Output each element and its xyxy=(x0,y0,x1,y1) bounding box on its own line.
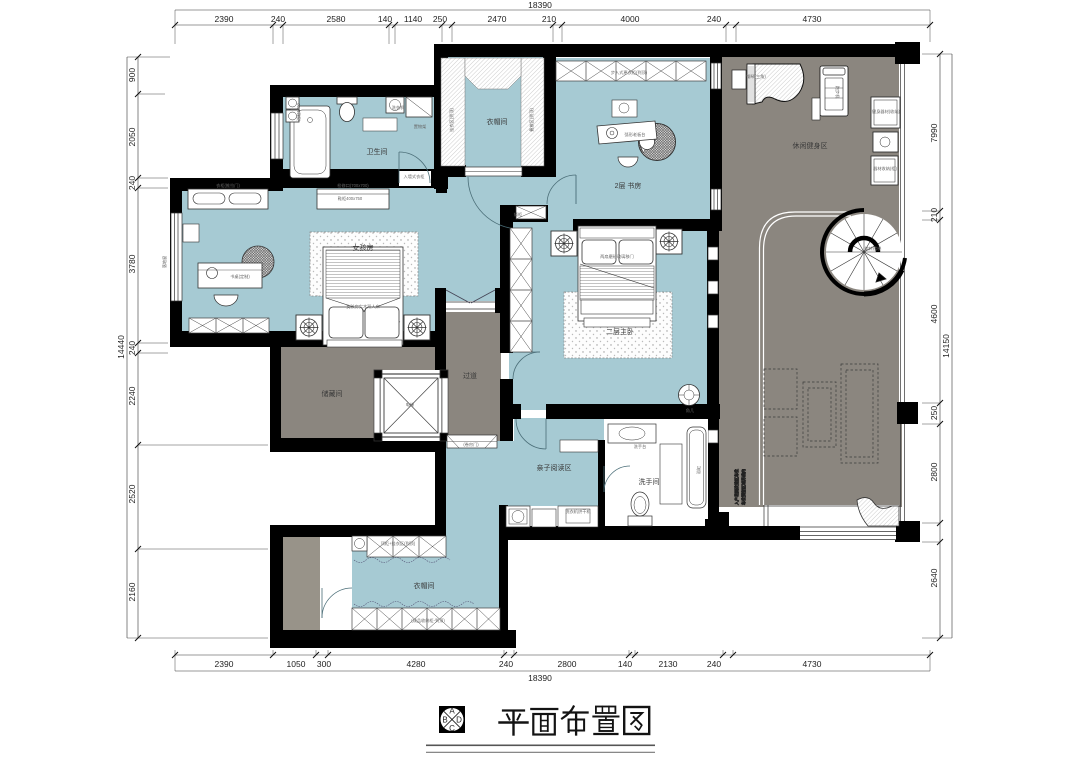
svg-text:2390: 2390 xyxy=(215,659,234,669)
svg-text:2层 书房: 2层 书房 xyxy=(615,181,642,190)
svg-text:电梯: 电梯 xyxy=(406,401,414,408)
svg-text:A: A xyxy=(449,707,455,716)
svg-text:鞋柜400x750: 鞋柜400x750 xyxy=(338,195,363,202)
svg-text:210: 210 xyxy=(542,14,556,24)
svg-text:叠放区(到顶): 叠放区(到顶) xyxy=(528,108,535,132)
svg-text:储藏间: 储藏间 xyxy=(322,389,343,398)
svg-text:2800: 2800 xyxy=(929,462,939,481)
svg-text:18390: 18390 xyxy=(528,673,552,683)
svg-text:240: 240 xyxy=(271,14,285,24)
svg-text:亲子阅读区: 亲子阅读区 xyxy=(537,463,572,472)
svg-text:2470: 2470 xyxy=(488,14,507,24)
svg-text:4600: 4600 xyxy=(929,304,939,323)
svg-text:(成品收纳柜-到顶): (成品收纳柜-到顶) xyxy=(411,617,445,624)
svg-text:(卷帘门): (卷帘门) xyxy=(463,441,479,448)
svg-text:1050: 1050 xyxy=(287,659,306,669)
svg-text:两扇磨砂玻璃移门: 两扇磨砂玻璃移门 xyxy=(600,253,634,260)
svg-text:1140: 1140 xyxy=(404,14,423,24)
svg-text:4280: 4280 xyxy=(407,659,426,669)
svg-text:洗手间: 洗手间 xyxy=(639,477,660,486)
svg-text:7990: 7990 xyxy=(929,123,939,142)
svg-text:入墙式衣柜: 入墙式衣柜 xyxy=(404,173,425,180)
svg-text:2240: 2240 xyxy=(127,386,137,405)
svg-text:300: 300 xyxy=(317,659,331,669)
svg-text:健身器材(收纳): 健身器材(收纳) xyxy=(872,108,901,115)
svg-text:浴缸1700: 浴缸1700 xyxy=(295,102,302,120)
svg-text:D: D xyxy=(456,716,462,725)
svg-text:跑步机: 跑步机 xyxy=(834,86,841,99)
svg-text:顶柜+挂衣区(到顶): 顶柜+挂衣区(到顶) xyxy=(381,540,416,547)
svg-text:步入式更衣柜(到顶): 步入式更衣柜(到顶) xyxy=(611,69,648,76)
svg-text:250: 250 xyxy=(929,406,939,420)
svg-text:角几: 角几 xyxy=(686,407,695,414)
svg-text:4730: 4730 xyxy=(803,14,822,24)
svg-text:18390: 18390 xyxy=(528,0,552,10)
svg-text:衣柜(推拉门): 衣柜(推拉门) xyxy=(216,182,240,189)
svg-text:检修口(700x700): 检修口(700x700) xyxy=(337,182,369,189)
svg-text:2520: 2520 xyxy=(127,484,137,503)
svg-text:衣帽间: 衣帽间 xyxy=(414,581,435,590)
svg-text:250: 250 xyxy=(433,14,447,24)
svg-text:二层主卧: 二层主卧 xyxy=(606,327,634,336)
svg-text:2800: 2800 xyxy=(558,659,577,669)
svg-text:卫生间: 卫生间 xyxy=(367,147,388,156)
svg-text:休闲健身区: 休闲健身区 xyxy=(793,141,828,150)
svg-text:过道: 过道 xyxy=(463,371,477,380)
svg-text:B: B xyxy=(442,716,447,725)
svg-text:210: 210 xyxy=(929,208,939,222)
svg-text:2130: 2130 xyxy=(659,659,678,669)
svg-text:2390: 2390 xyxy=(215,14,234,24)
svg-text:14150: 14150 xyxy=(941,334,951,358)
svg-text:140: 140 xyxy=(618,659,632,669)
svg-text:2640: 2640 xyxy=(929,568,939,587)
svg-text:器材收纳(柜): 器材收纳(柜) xyxy=(873,165,897,172)
svg-text:浴缸: 浴缸 xyxy=(695,465,702,474)
svg-text:挂衣区(到顶): 挂衣区(到顶) xyxy=(448,108,455,132)
svg-text:240: 240 xyxy=(127,341,137,355)
svg-text:书桌(定制): 书桌(定制) xyxy=(230,273,250,280)
svg-text:洗衣机烘干机: 洗衣机烘干机 xyxy=(565,508,591,515)
svg-text:弧形老板台: 弧形老板台 xyxy=(625,131,646,138)
svg-text:2050: 2050 xyxy=(127,127,137,146)
svg-text:240: 240 xyxy=(499,659,513,669)
svg-text:240: 240 xyxy=(127,176,137,190)
svg-text:2160: 2160 xyxy=(127,582,137,601)
svg-text:矮柜: 矮柜 xyxy=(514,211,522,218)
svg-text:14440: 14440 xyxy=(116,335,126,359)
svg-text:落地窗: 落地窗 xyxy=(161,256,168,269)
svg-text:旋转楼梯: 旋转楼梯 xyxy=(865,245,882,252)
svg-text:C: C xyxy=(449,724,455,733)
svg-text:洗衣机: 洗衣机 xyxy=(392,104,405,111)
svg-text:900: 900 xyxy=(127,68,137,82)
svg-text:240: 240 xyxy=(707,659,721,669)
svg-text:女孩房: 女孩房 xyxy=(353,243,374,252)
svg-text:钢琴(三角): 钢琴(三角) xyxy=(746,73,766,80)
svg-text:车位预留区域界线内: 车位预留区域界线内 xyxy=(740,469,746,505)
svg-text:女孩房实木双人床: 女孩房实木双人床 xyxy=(346,303,380,310)
svg-text:衣帽间: 衣帽间 xyxy=(487,117,508,126)
svg-text:4000: 4000 xyxy=(621,14,640,24)
svg-text:3780: 3780 xyxy=(127,254,137,273)
svg-text:4730: 4730 xyxy=(803,659,822,669)
svg-text:入户花园改造区车位: 入户花园改造区车位 xyxy=(733,469,739,505)
svg-text:2580: 2580 xyxy=(327,14,346,24)
svg-text:240: 240 xyxy=(707,14,721,24)
svg-text:140: 140 xyxy=(378,14,392,24)
svg-text:洗手台: 洗手台 xyxy=(634,443,647,450)
svg-text:置物架: 置物架 xyxy=(414,123,427,130)
